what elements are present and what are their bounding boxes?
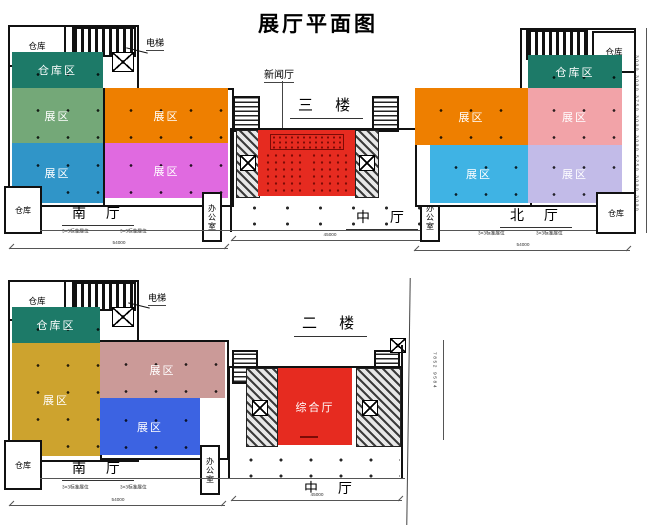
f3-zone-cyan: 展区	[430, 145, 528, 203]
f3-zone-orange-north: 展区	[415, 88, 528, 145]
booth-note: 3×3标准展位	[62, 483, 89, 490]
zone-label: 仓库区	[37, 317, 76, 333]
zone-label: 展区	[150, 362, 176, 378]
zone-label: 展区	[43, 392, 69, 408]
seat-rows	[310, 152, 350, 192]
floor-plan-page: 展厅平面图 仓库 电梯 仓库区 展区 展区 展区 展区 仓库 南 厅 3×3标准…	[0, 0, 658, 529]
office-label: 办公室	[205, 457, 216, 484]
f2-central-dimension: 45000	[232, 500, 402, 501]
page-title: 展厅平面图	[258, 8, 378, 38]
f2-zone-rose: 展区	[100, 342, 225, 398]
zone-label: 展区	[562, 166, 588, 182]
elevator-icon	[362, 400, 378, 416]
stair-tower-icon	[233, 96, 260, 132]
f3-right-dimension-values: 3000 3000 3750 3000 3000 5250 3000 3000	[634, 55, 639, 183]
f2-office: 办公室	[200, 445, 220, 495]
wall	[401, 345, 403, 478]
f2-central-corridor-columns	[230, 448, 400, 478]
zone-label: 综合厅	[296, 399, 335, 415]
elevator-icon	[359, 155, 375, 171]
f2-warehouse-area: 仓库区	[12, 307, 100, 343]
f3-zone-orange-south: 展区	[105, 88, 228, 143]
f3-elevator-label: 电梯	[146, 36, 164, 51]
leader-line	[282, 81, 283, 129]
f3-zone-magenta: 展区	[105, 143, 228, 198]
dimension-value: 45000	[322, 233, 338, 238]
f3-news-hall-label: 新闻厅	[264, 66, 294, 83]
stage-icon	[270, 134, 344, 150]
dimension-value: 54000	[514, 243, 530, 248]
zone-label: 展区	[466, 166, 492, 182]
zone-label: 仓库区	[556, 64, 595, 80]
dimension-value: 54000	[111, 241, 127, 246]
f3-warehouse-area: 仓库区	[12, 52, 103, 88]
f2-zone-blue: 展区	[100, 398, 200, 455]
f3-south-dimension: 54000	[10, 248, 228, 249]
zone-label: 仓库区	[38, 62, 77, 78]
zone-label: 展区	[459, 109, 485, 125]
office-label: 办公室	[207, 204, 218, 231]
elevator-icon	[240, 155, 256, 171]
f3-zone-salmon: 展区	[528, 88, 622, 145]
f2-south-dimension: 54000	[10, 505, 225, 506]
stage-mark	[300, 436, 318, 438]
dimension-value: 54000	[109, 498, 125, 503]
f3-south-warehouse-bottom: 仓库	[4, 186, 42, 234]
elevator-icon	[390, 338, 406, 353]
break-line	[406, 278, 410, 525]
f2-main-hall-block: 综合厅	[278, 368, 352, 445]
f3-south-hall-label: 南 厅	[62, 203, 134, 226]
f2-warehouse-bottom: 仓库	[4, 440, 42, 490]
f3-north-warehouse-bottom: 仓库	[596, 192, 636, 234]
f2-elevator-label: 电梯	[148, 291, 166, 306]
f3-north-dimension: 54000	[415, 250, 630, 251]
f2-central-hall-label: 中 厅	[294, 478, 366, 501]
seat-rows	[264, 152, 304, 192]
f3-north-hall-label: 北 厅	[500, 205, 572, 228]
zone-label: 展区	[45, 108, 71, 124]
booth-note: 3×3标准展位	[536, 229, 563, 236]
f3-north-warehouse-area: 仓库区	[528, 55, 622, 88]
f2-side-dimension-line	[443, 340, 444, 440]
booth-note: 3×3标准展位	[478, 229, 505, 236]
warehouse-label: 仓库	[15, 205, 31, 216]
warehouse-label: 仓库	[28, 295, 45, 307]
f2-side-dimension-values: 7852 9584	[432, 352, 437, 416]
dimension-value: 45000	[309, 493, 325, 498]
f3-right-dimension-line	[646, 28, 647, 233]
f3-central-dimension: 45000	[232, 240, 428, 241]
zone-label: 展区	[137, 419, 163, 435]
f3-office-left: 办公室	[202, 192, 222, 242]
zone-label: 展区	[562, 109, 588, 125]
f2-floor-label: 二 楼	[294, 312, 367, 337]
zone-label: 展区	[154, 163, 180, 179]
stair-tower-icon	[372, 96, 399, 132]
f3-floor-label: 三 楼	[290, 94, 363, 119]
f3-zone-green: 展区	[12, 88, 103, 143]
warehouse-label: 仓库	[15, 460, 31, 471]
elevator-icon	[112, 52, 134, 72]
warehouse-label: 仓库	[28, 40, 45, 52]
zone-label: 展区	[45, 165, 71, 181]
elevator-icon	[252, 400, 268, 416]
zone-label: 展区	[154, 108, 180, 124]
office-label: 办公室	[425, 204, 436, 231]
elevator-icon	[112, 307, 134, 327]
f3-central-hall-label: 中 厅	[346, 207, 418, 230]
warehouse-label: 仓库	[608, 208, 624, 219]
booth-note: 3×3标准展位	[120, 483, 147, 490]
